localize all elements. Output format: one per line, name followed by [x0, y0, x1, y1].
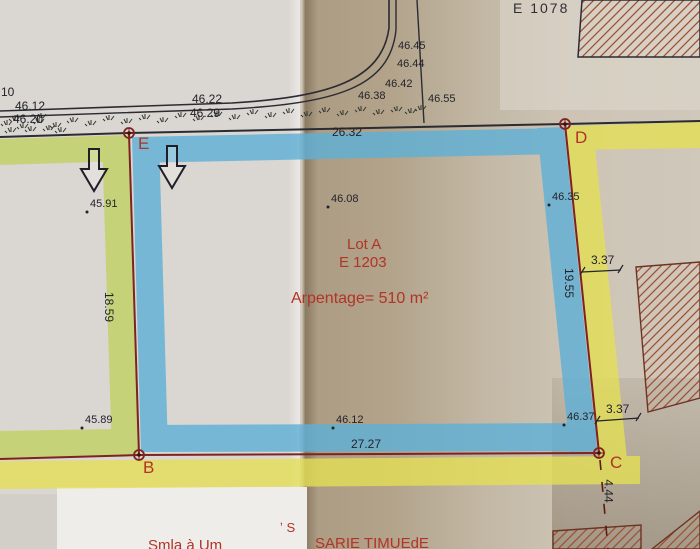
- road-elevation-46-42: 46.42: [385, 79, 413, 90]
- clipped-note-tick: ʼ S: [280, 521, 295, 534]
- building-bottom-strip: [553, 525, 641, 549]
- lot-parcel-id: E 1203: [339, 255, 387, 270]
- spot-elevation-45-91: 45.91: [90, 199, 118, 210]
- road-elevation-46-20: 46.20: [13, 113, 43, 125]
- road-elevation-46-29: 46.29: [190, 107, 220, 119]
- dimension-below-c: 4.44: [603, 479, 615, 502]
- plan-drawing: [0, 0, 700, 549]
- dimension-top: 26.32: [332, 126, 362, 138]
- corner-marker-c: [594, 448, 604, 458]
- road-elevation-46-44: 46.44: [397, 59, 425, 70]
- survey-plan-photo: 10 46.12 46.20 46.22 46.29 46.45 46.44 4…: [0, 0, 700, 549]
- left-parcel-green-highlight: [0, 135, 139, 459]
- corner-label-c: C: [610, 454, 622, 471]
- dimension-right: 19.55: [563, 268, 575, 298]
- road-elevation-46-12: 46.12: [15, 100, 45, 112]
- road-elevation-46-45: 46.45: [398, 41, 426, 52]
- spot-elevation-46-08: 46.08: [331, 194, 359, 205]
- clipped-note-left: Smla à Um: [148, 538, 222, 549]
- lot-area-label: Arpentage= 510 m²: [291, 291, 428, 307]
- neighbor-parcel-id: E 1078: [513, 1, 569, 15]
- road-elevation-10: 10: [1, 86, 14, 98]
- corner-label-d: D: [575, 129, 587, 146]
- spot-elevation-45-89: 45.89: [85, 415, 113, 426]
- dimension-offset-bottom: 3.37: [606, 403, 629, 415]
- lot-name: Lot A: [347, 237, 381, 252]
- road-elevation-46-38: 46.38: [358, 91, 386, 102]
- dimension-left: 18.59: [103, 292, 115, 322]
- building-east: [636, 262, 700, 412]
- building-bottom-corner: [652, 511, 700, 549]
- road-elevation-46-55: 46.55: [428, 94, 456, 105]
- spot-elevation-46-12: 46.12: [336, 415, 364, 426]
- road-elevation-46-22: 46.22: [192, 93, 222, 105]
- corner-label-e: E: [138, 135, 149, 152]
- corner-label-b: B: [143, 459, 154, 476]
- spot-elevation-46-37: 46.37: [567, 412, 595, 423]
- clipped-note-right: SARIE TIMUEdE: [315, 536, 429, 549]
- corner-marker-e: [124, 128, 134, 138]
- building-e1078: [578, 0, 700, 57]
- corner-marker-d: [560, 119, 570, 129]
- dimension-bottom: 27.27: [351, 438, 381, 450]
- dimension-offset-top: 3.37: [591, 254, 614, 266]
- spot-elevation-46-35: 46.35: [552, 192, 580, 203]
